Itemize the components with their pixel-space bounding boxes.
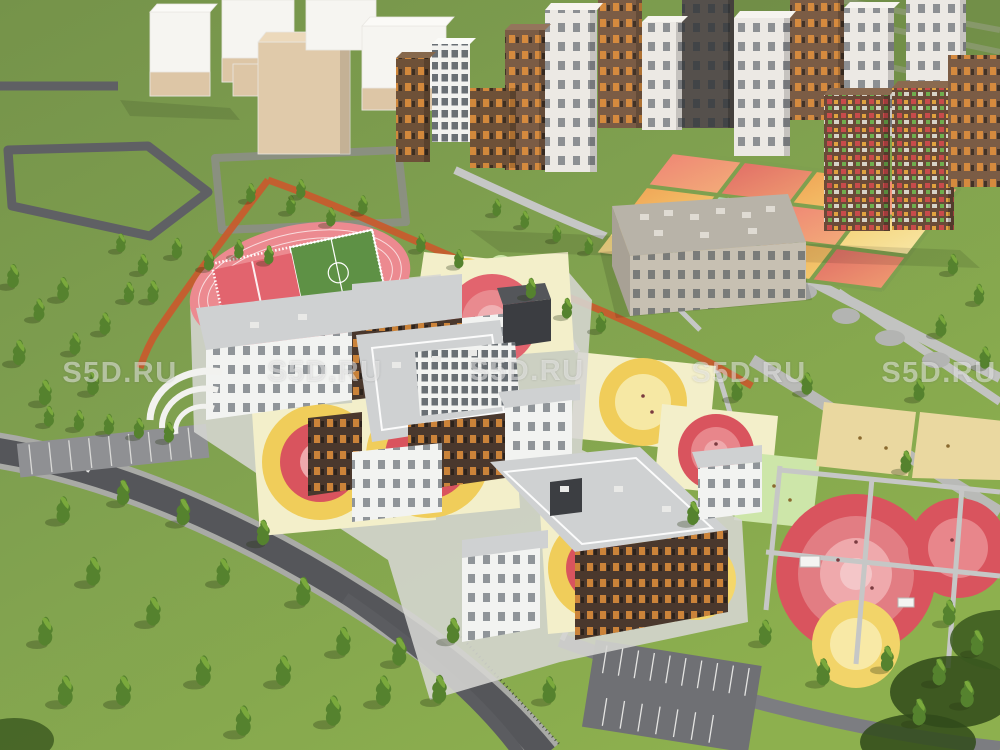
massing-roof (362, 17, 454, 26)
render-scene (0, 0, 1000, 750)
dark-cube (503, 299, 551, 348)
tower-mosaic (824, 88, 896, 231)
school-windows (352, 443, 442, 522)
tower (642, 16, 688, 130)
school-windows (462, 548, 540, 642)
paving-island (922, 352, 950, 368)
massing-tower-beige (258, 42, 350, 154)
tower (432, 38, 476, 142)
tower (598, 0, 642, 128)
dark-cube (550, 478, 582, 516)
tower (682, 0, 734, 128)
tower (470, 88, 516, 168)
massing-base (150, 72, 210, 96)
tower (396, 52, 436, 162)
pavilion (898, 598, 914, 607)
kindergarten-building (600, 194, 812, 318)
architectural-render: S5D.RU S5D.RU S5D.RU S5D.RU S5D.RU (0, 0, 1000, 750)
pavilion (800, 556, 820, 567)
tower (948, 55, 1000, 187)
tower (545, 3, 603, 172)
massing-roof (150, 4, 217, 12)
shade (340, 42, 350, 154)
playground-plot (912, 412, 1000, 480)
paving-island (875, 330, 905, 346)
paving-island (832, 308, 860, 324)
school-windows (698, 462, 762, 520)
tower (734, 11, 796, 156)
